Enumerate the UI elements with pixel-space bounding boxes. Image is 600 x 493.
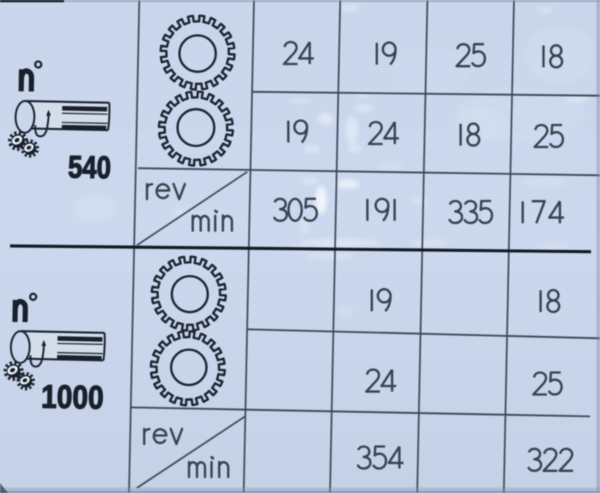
- svg-text:540: 540: [68, 149, 112, 185]
- svg-text:1000: 1000: [41, 378, 104, 416]
